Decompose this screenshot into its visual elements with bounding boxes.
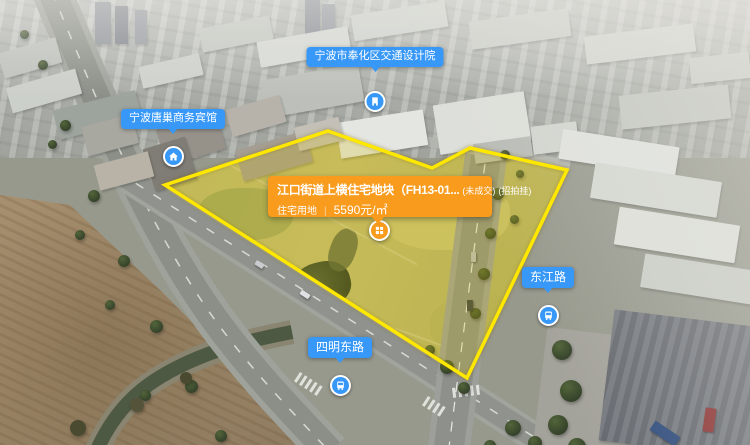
map-viewport[interactable]: 宁波市奉化区交通设计院 宁波唐巢商务宾馆 东江路 四明东路 — [0, 0, 750, 445]
grid-building-icon — [374, 225, 385, 236]
bubble-tail — [543, 287, 553, 298]
bus-icon — [542, 310, 553, 321]
parcel-land-use: 住宅用地 — [277, 202, 317, 217]
bus-icon — [334, 380, 345, 391]
building-icon — [370, 96, 381, 107]
bubble-tail — [370, 66, 380, 77]
divider: | — [324, 206, 327, 217]
poi-siming-east-road-label[interactable]: 四明东路 — [308, 337, 372, 358]
poi-dongjiang-road[interactable]: 东江路 — [522, 267, 574, 326]
parcel-title: 江口街道上横住宅地块（FH13-01... — [277, 181, 459, 198]
poi-siming-east-road[interactable]: 四明东路 — [308, 337, 372, 396]
home-icon — [168, 151, 179, 162]
parcel-status-unsold: (未成交) — [462, 184, 495, 197]
poi-hotel-marker[interactable] — [163, 146, 184, 167]
parcel-info-card[interactable]: 江口街道上横住宅地块（FH13-01... (未成交) (招拍挂) 住宅用地 |… — [268, 176, 492, 217]
poi-siming-east-road-marker[interactable] — [329, 375, 350, 396]
poi-hotel[interactable]: 宁波唐巢商务宾馆 — [121, 109, 225, 167]
card-tail — [371, 216, 385, 224]
poi-dongjiang-road-label[interactable]: 东江路 — [522, 267, 574, 288]
parcel-status-listing: (招拍挂) — [498, 184, 531, 197]
poi-institute-marker[interactable] — [365, 91, 386, 112]
poi-dongjiang-road-marker[interactable] — [537, 305, 558, 326]
bubble-tail — [168, 128, 178, 139]
poi-hotel-label[interactable]: 宁波唐巢商务宾馆 — [121, 109, 225, 129]
poi-institute-label[interactable]: 宁波市奉化区交通设计院 — [307, 47, 444, 67]
poi-institute[interactable]: 宁波市奉化区交通设计院 — [307, 47, 444, 112]
bubble-tail — [335, 357, 345, 368]
